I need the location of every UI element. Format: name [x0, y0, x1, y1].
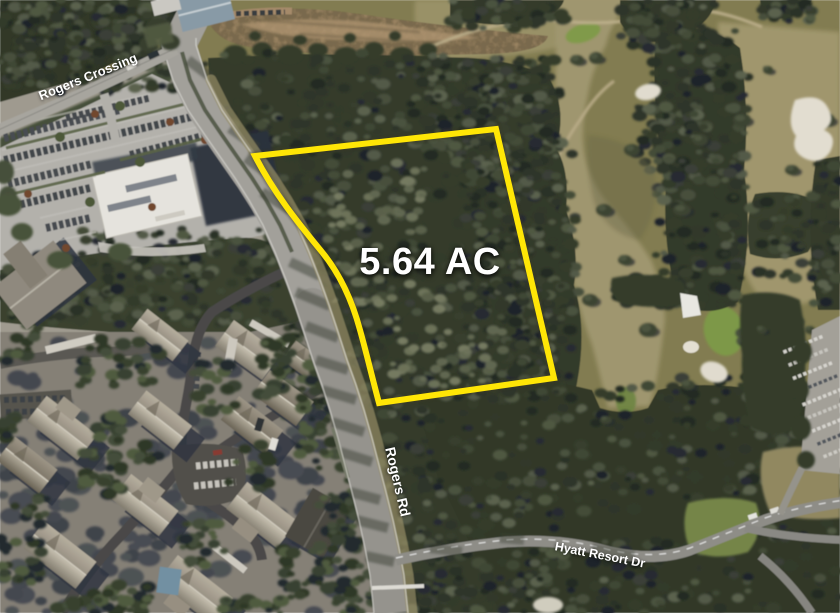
svg-text:5.64 AC: 5.64 AC: [359, 241, 501, 283]
